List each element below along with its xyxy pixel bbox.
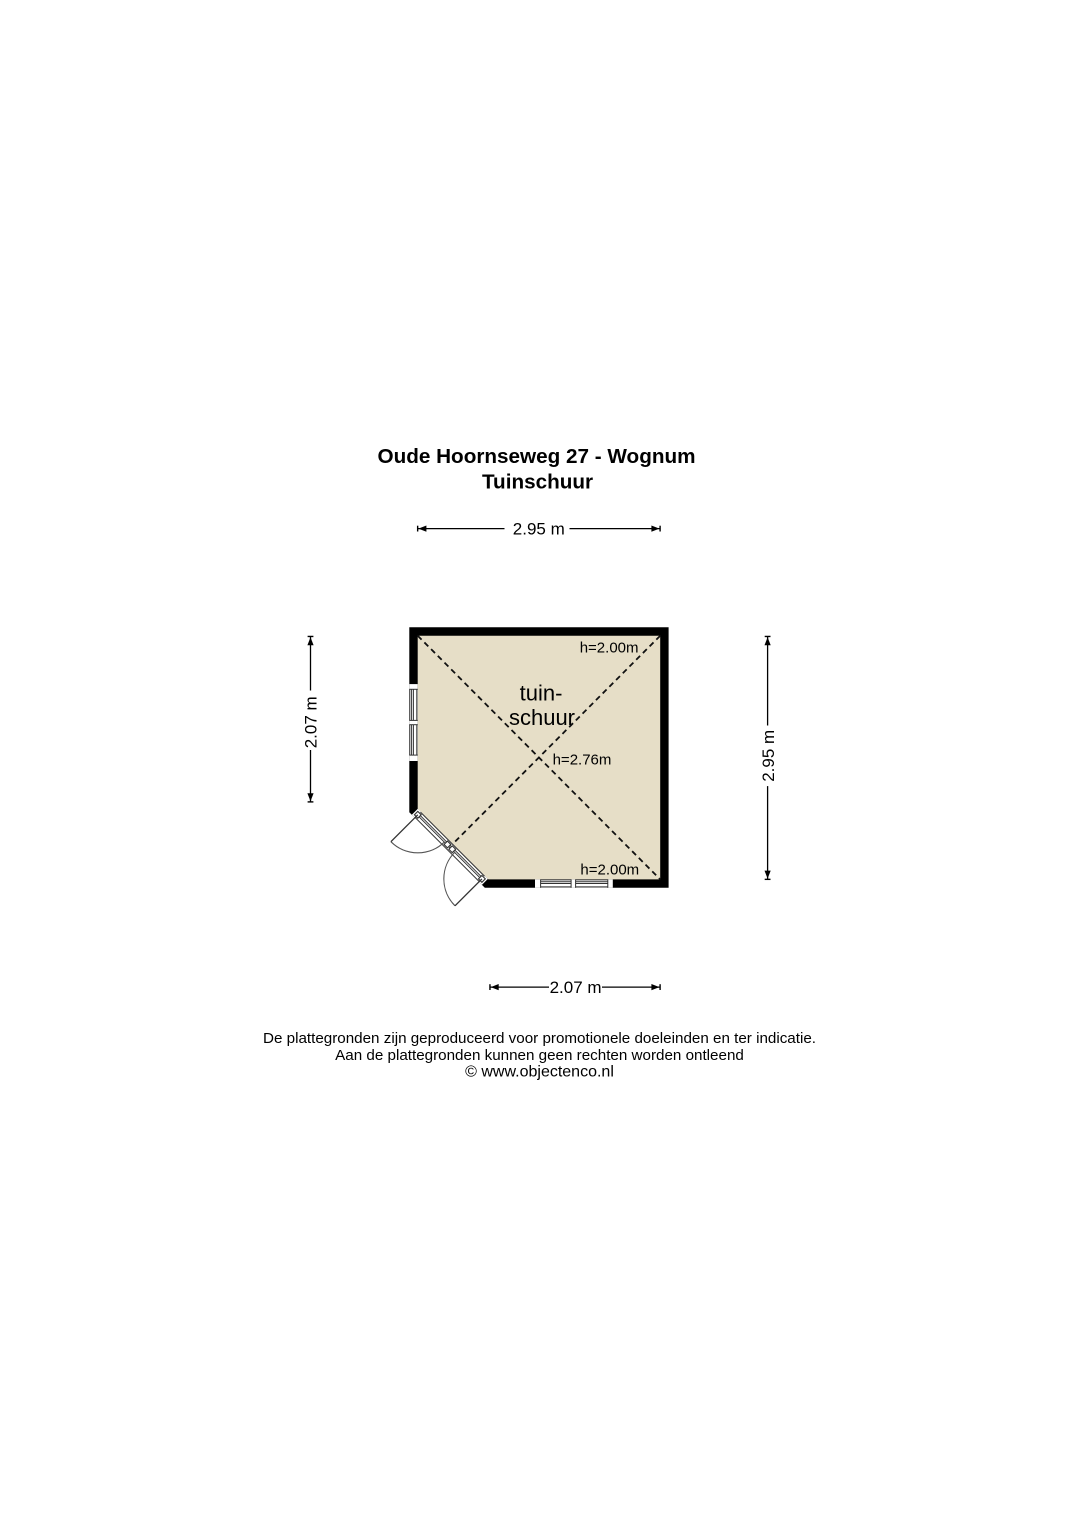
- svg-text:De plattegronden zijn geproduc: De plattegronden zijn geproduceerd voor …: [263, 1030, 816, 1047]
- svg-text:Aan de plattegronden kunnen ge: Aan de plattegronden kunnen geen rechten…: [335, 1047, 744, 1064]
- svg-text:2.07 m: 2.07 m: [302, 696, 321, 748]
- svg-text:h=2.00m: h=2.00m: [580, 640, 639, 657]
- svg-text:tuin-: tuin-: [520, 681, 563, 706]
- svg-text:h=2.00m: h=2.00m: [580, 861, 639, 878]
- svg-text:Tuinschuur: Tuinschuur: [482, 470, 593, 493]
- svg-text:2.95 m: 2.95 m: [513, 520, 565, 539]
- svg-text:© www.objectenco.nl: © www.objectenco.nl: [465, 1064, 614, 1081]
- svg-text:2.95 m: 2.95 m: [759, 730, 778, 782]
- svg-text:2.07 m: 2.07 m: [550, 978, 602, 997]
- svg-text:h=2.76m: h=2.76m: [553, 751, 612, 768]
- svg-text:schuur: schuur: [509, 705, 575, 730]
- svg-text:Oude Hoornseweg 27 - Wognum: Oude Hoornseweg 27 - Wognum: [378, 445, 696, 468]
